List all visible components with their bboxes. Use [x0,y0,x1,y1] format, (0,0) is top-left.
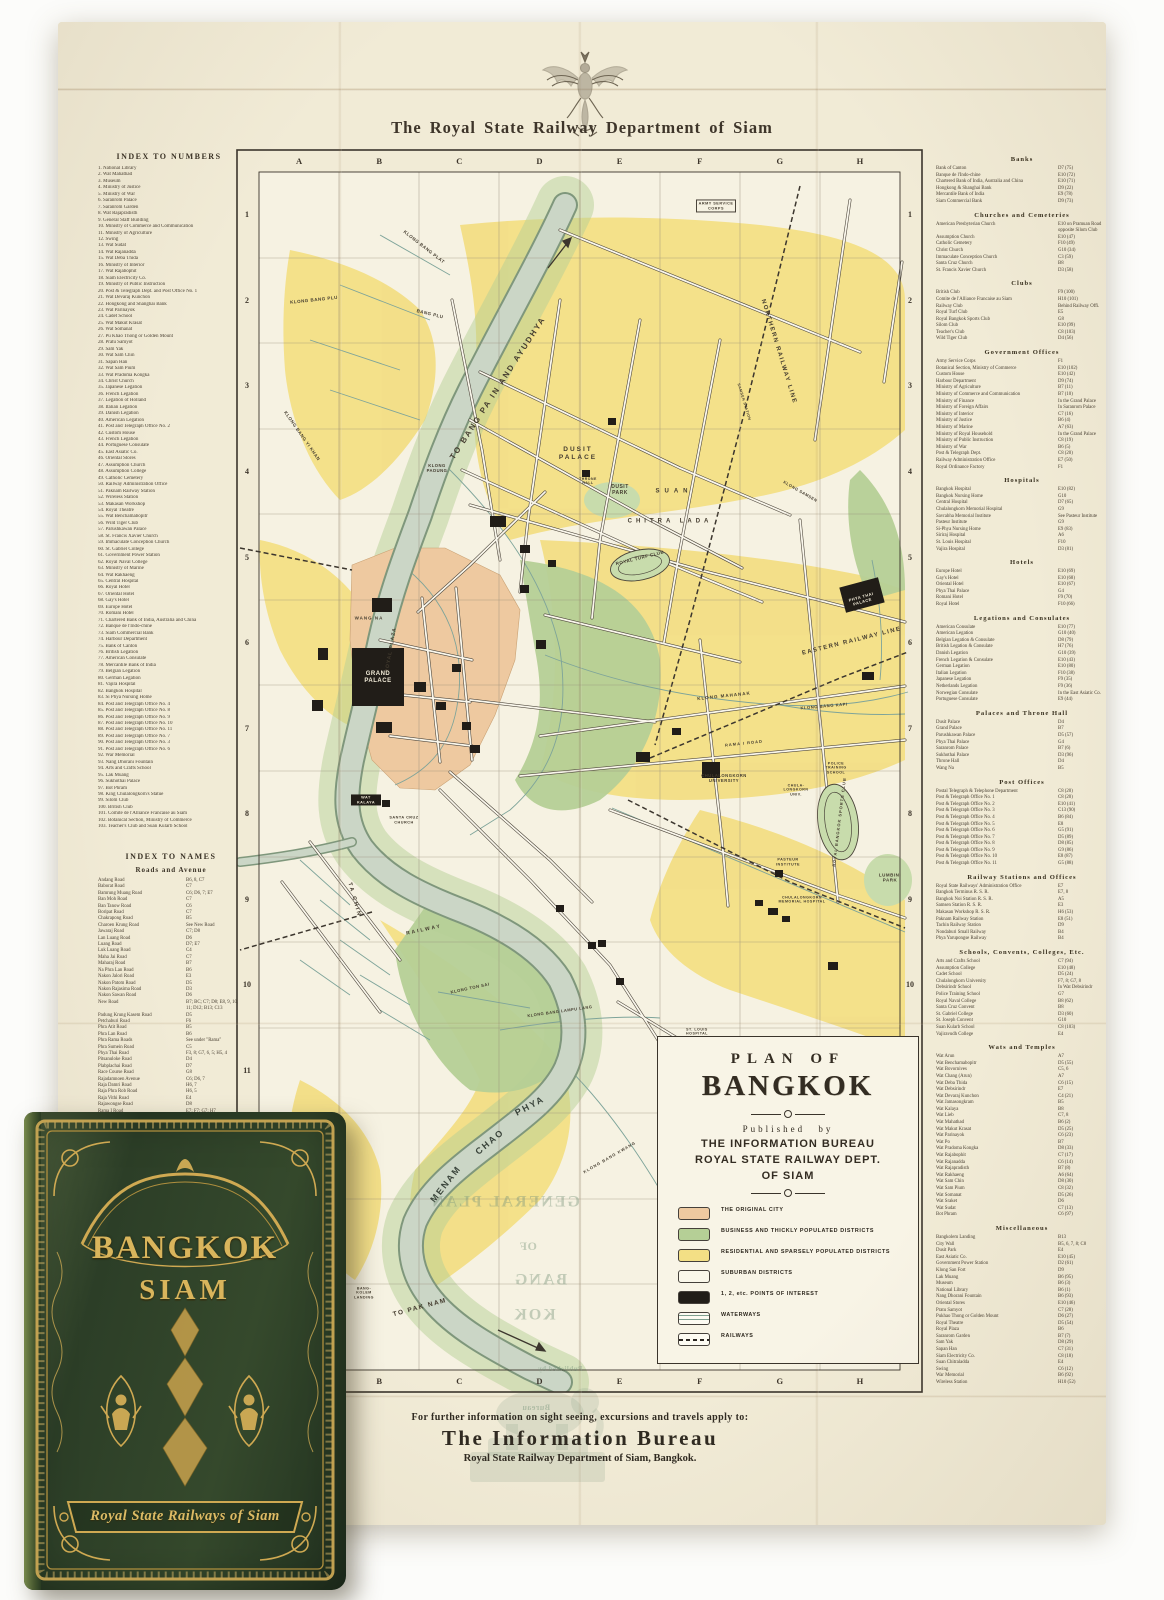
index-entry: Italian LegationF10 (38) [936,671,1106,678]
index-entry: Siam Commercial BankD9 (73) [936,199,1106,206]
index-entry: Nondaburi Small RailwayB4 [936,930,1106,937]
index-entry: Japanese LegationF9 (35) [936,677,1106,684]
grid-number: 5 [902,514,918,600]
index-section-title: Hotels [936,559,1106,566]
index-entry: Wat Chang (Arun)A7 [936,1074,1106,1081]
index-entry: Danish LegationG10 (39) [936,651,1106,658]
index-entry: Debsirindr SchoolIn Wat Debsirindr [936,985,1106,992]
index-section: Schools, Convents, Colleges, Etc. Arts a… [936,949,1106,1038]
grid-letter: H [820,1372,900,1390]
index-entry: City WallB5, 6, 7, 8; C8 [936,1242,1106,1249]
grid-number: 4 [239,429,255,515]
grid-number: 1 [239,172,255,258]
photograph-of-map-and-guidebook: The Royal State Railway Department of Si… [0,0,1164,1600]
map-grid-letters-top: ABCDEFGH [259,152,900,170]
index-section: Hotels Europe HotelE10 (69) Gay's HotelE… [936,559,1106,609]
index-entry: Wat SomanatD5 (26) [936,1193,1106,1200]
index-entry: Pukhao Thong or Golden MountD6 (27) [936,1314,1106,1321]
grid-number: 7 [902,685,918,771]
index-entry: Paknam Railway StationE8 (51) [936,917,1106,924]
index-entry: Wat KalayaB8 [936,1107,1106,1114]
grid-number: 1 [902,172,918,258]
legend-item: SUBURBAN DISTRICTS [678,1270,918,1283]
index-entry: Mercantile Bank of IndiaE9 (78) [936,192,1106,199]
index-entry: Wat JamasongkramB5 [936,1100,1106,1107]
publisher-line1: THE INFORMATION BUREAU [658,1138,918,1150]
index-section-title: Schools, Convents, Colleges, Etc. [936,949,1106,956]
index-entry: Immaculate Conception ChurchC3 (59) [936,255,1106,262]
index-entry: Bot PhramC6 (97) [936,1212,1106,1219]
grid-number: 9 [239,857,255,943]
index-entry: Vajiravudh CollegeE4 [936,1032,1106,1039]
index-section: Wats and Temples Wat ArunA7 Wat Benchama… [936,1044,1106,1219]
index-entry: Ministry of InteriorC7 (16) [936,412,1106,419]
index-entry: Cadet SchoolD5 (24) [936,972,1106,979]
index-entry: Ministry of Public InstructionC8 (19) [936,438,1106,445]
index-entry: Saranrom PalaceB7 (6) [936,746,1106,753]
grid-number: 6 [902,600,918,686]
index-section-title: Wats and Temples [936,1044,1106,1051]
index-section: Palaces and Throne Hall Dusit PalaceD4 G… [936,710,1106,773]
index-section-title: Railway Stations and Offices [936,874,1106,881]
index-entry: Santa Cruz ConventB8 [936,1005,1106,1012]
legend-item: RESIDENTIAL AND SPARSELY POPULATED DISTR… [678,1249,918,1262]
footer-line1: For further information on sight seeing,… [260,1412,900,1423]
index-by-category: Banks Bank of CantonD7 (75) Banque de l'… [936,150,1106,1387]
index-entry: Siam Electricity Co.C8 (18) [936,1354,1106,1361]
index-entry: SwingC6 (12) [936,1367,1106,1374]
legend-item: 1, 2, etc. POINTS OF INTEREST [678,1291,918,1304]
index-entry: St. Francis Xavier ChurchD3 (58) [936,268,1106,275]
index-entry: Wat RajabophitC7 (17) [936,1153,1106,1160]
grid-letter: F [660,152,740,170]
index-entry: Wat SraketD6 [936,1199,1106,1206]
index-entry: Post & Telegraph Office No. 3C13 (90) [936,808,1106,815]
railways-swatch [678,1333,710,1346]
index-entry: Arts and Crafts SchoolC7 (94) [936,959,1106,966]
grid-number: 11 [239,1028,255,1114]
grid-letter: D [499,1372,579,1390]
grid-letter: B [339,152,419,170]
index-entry: Makasan Workshop R. S. R.H6 (53) [936,910,1106,917]
grid-number: 3 [902,343,918,429]
points-of-interest-swatch [678,1291,710,1304]
index-entry: Wat RakhaengA6 (64) [936,1173,1106,1180]
index-entry: Royal Turf ClubE5 [936,310,1106,317]
index-section: Miscellaneous Bangkolem LandingB13 City … [936,1225,1106,1387]
index-entry: Chulalongkorn UniversityF7, 8; G7, 8 [936,979,1106,986]
grid-letter: G [740,152,820,170]
publisher-line3: OF SIAM [658,1170,918,1182]
index-entry: Sapan HanC7 (31) [936,1347,1106,1354]
index-entry: Royal Naval CollegeB8 (62) [936,999,1106,1006]
index-entry: Wat RajapradisthB7 (8) [936,1166,1106,1173]
index-entry: Wat Sam PiumC8 (32) [936,1186,1106,1193]
index-section-title: Legations and Consulates [936,615,1106,622]
index-section: Clubs British ClubF9 (100) Comite de l'A… [936,280,1106,343]
index-entry: Nang Dhorani FountainB6 (93) [936,1294,1106,1301]
index-entry: Bangkok Terminus R. S. R.E7, 8 [936,890,1106,897]
index-entry: Royal PlazaB6 [936,1327,1106,1334]
index-entry: American Presbyterian ChurchE10 on Pramu… [936,222,1106,235]
divider-ornament [658,1189,918,1197]
index-entry: Portuguese ConsulateE9 (44) [936,697,1106,704]
index-section: Hospitals Bangkok HospitalE10 (82) Bangk… [936,477,1106,553]
index-entry: Post & Telegraph Office No. 4B6 (84) [936,815,1106,822]
index-entry: National LibraryB6 (1) [936,1288,1106,1295]
index-to-numbers: INDEX TO NUMBERS 1. National Library2. W… [98,152,240,831]
index-entry: Postal Telegraph & Telephone DepartmentC… [936,789,1106,796]
index-entry: Bank of CantonD7 (75) [936,166,1106,173]
index-entry: Si-Phya Nursing HomeE9 (83) [936,527,1106,534]
index-entry: Post & Telegraph Office No. 5E8 [936,822,1106,829]
index-entry: Norwegian ConsulateIn the East Asiatic C… [936,691,1106,698]
index-section-title: Churches and Cemeteries [936,212,1106,219]
grid-letter: D [499,152,579,170]
index-entry: Siriraj HospitalA6 [936,533,1106,540]
business-districts-swatch [678,1228,710,1241]
index-entry: Government Power StationD2 (61) [936,1261,1106,1268]
publisher-line2: ROYAL STATE RAILWAY DEPT. [658,1154,918,1166]
legend-item: BUSINESS AND THICKLY POPULATED DISTRICTS [678,1228,918,1241]
index-entry: Belgian Legation & ConsulateD8 (79) [936,638,1106,645]
index-entry: Europe HotelE10 (69) [936,569,1106,576]
index-numbers-title: INDEX TO NUMBERS [98,152,240,161]
book-banner-text: Royal State Railways of Siam [24,1508,346,1525]
index-entry: Dusit PalaceD4 [936,720,1106,727]
suburban-districts-swatch [678,1270,710,1283]
index-entry: Ministry of AgricultureB7 (11) [936,385,1106,392]
index-section-title: Post Offices [936,779,1106,786]
index-entry: War MemorialB6 (92) [936,1373,1106,1380]
index-entry: Saranrom GardenB7 (7) [936,1334,1106,1341]
index-entry: Wat MahathadB6 (2) [936,1120,1106,1127]
index-entry: Army Service CorpsF1 [936,359,1106,366]
index-entry: Santa Cruz ChurchB8 [936,261,1106,268]
index-entry: Bangkok HospitalE10 (82) [936,487,1106,494]
index-entry: American ConsulateE10 (77) [936,625,1106,632]
index-entry: Wat PoB7 [936,1140,1106,1147]
grid-letter: G [740,1372,820,1390]
index-entry: St. Joseph ConventG10 [936,1018,1106,1025]
grid-number: 10 [239,942,255,1028]
index-entry: Wat Pradoma KongkaD8 (33) [936,1146,1106,1153]
index-entry: Klong San FortD9 [936,1268,1106,1275]
index-entry: Harbour DepartmentD9 (74) [936,379,1106,386]
index-entry: Wang NaB5 [936,766,1106,773]
index-entry: Post & Telegraph Office No. 11G5 (88) [936,861,1106,868]
index-entry: Ministry of FinanceIn the Grand Palace [936,399,1106,406]
index-entry: Teacher's ClubC8 (103) [936,330,1106,337]
roads-subtitle: Roads and Avenue [98,866,244,874]
index-entry: Sukhothai PalaceD3 (96) [936,753,1106,760]
index-entry: Chulalongkorn Memorial HospitalG9 [936,507,1106,514]
index-entry: Lak MuangB6 (95) [936,1275,1106,1282]
index-names-title: INDEX TO NAMES [98,852,244,861]
index-section-title: Banks [936,156,1106,163]
index-entry: East Asiatic Co.E10 (45) [936,1255,1106,1262]
index-entry: Samsen Station R. S. R.E3 [936,903,1106,910]
index-entry: Post & Telegraph Office No. 1C8 (20) [936,795,1106,802]
index-entry: Romani HotelF9 (70) [936,595,1106,602]
index-entry: Phya Thai PalaceG4 [936,740,1106,747]
index-entry: Parushkawan PalaceD5 (57) [936,733,1106,740]
book-title-bangkok: BANGKOK [24,1230,346,1267]
index-entry: Royal TheatreD5 (54) [936,1321,1106,1328]
index-entry: Tachin Railway StationD9 [936,923,1106,930]
index-entry: Wat DebsirindrE7 [936,1087,1106,1094]
book-title-siam: SIAM [24,1274,346,1307]
index-entry: Wat SudatC7 (13) [936,1206,1106,1213]
grid-number: 2 [902,258,918,344]
guidebook-cover: BANGKOK SIAM Royal State Railways of Sia… [24,1112,346,1590]
legend-item: THE ORIGINAL CITY [678,1207,918,1220]
index-entry: Suan ChitraladdaE4 [936,1360,1106,1367]
index-entry: Post & Telegraph Office No. 9G9 (86) [936,848,1106,855]
original-city-swatch [678,1207,710,1220]
index-entry: Wat ArunA7 [936,1054,1106,1061]
index-entry: Ministry of WarB6 (5) [936,445,1106,452]
index-entry: Silom ClubE10 (99) [936,323,1106,330]
index-entry: Ministry of Commerce and CommunicationB7… [936,392,1106,399]
index-entry: Custom HouseE10 (42) [936,372,1106,379]
index-entry: Netherlands LegationF9 (36) [936,684,1106,691]
index-entry: Phya Thai PalaceG4 [936,589,1106,596]
grid-number: 2 [239,258,255,344]
index-entry: Vajira HospitalD3 (81) [936,547,1106,554]
index-entry: Assumption ChurchE10 (47) [936,235,1106,242]
index-entry: Bangkok Nursing HomeG10 [936,494,1106,501]
index-section: Post Offices Postal Telegraph & Telephon… [936,779,1106,868]
grid-number: 7 [239,685,255,771]
grid-letter: E [580,152,660,170]
legend-title-line1: PLAN OF [658,1051,918,1068]
map-legend: PLAN OF BANGKOK Published by THE INFORMA… [657,1036,919,1364]
index-entry: Police Training SchoolG7 [936,992,1106,999]
index-entry: Pratu SamyotC7 (28) [936,1308,1106,1315]
map-sheet-title: The Royal State Railway Department of Si… [58,118,1106,138]
grid-letter: B [339,1372,419,1390]
index-entry: Royal Ordinance FactoryF1 [936,465,1106,472]
legend-item: WATERWAYS [678,1312,918,1325]
index-entry: Botanical Section, Ministry of CommerceE… [936,366,1106,373]
index-entry: Christ ChurchG10 (34) [936,248,1106,255]
index-section-title: Miscellaneous [936,1225,1106,1232]
index-section-title: Hospitals [936,477,1106,484]
index-entry: Sam YakD8 (29) [936,1340,1106,1347]
index-entry: Dusit ParkE4 [936,1248,1106,1255]
grid-number: 3 [239,343,255,429]
index-entry: Ministry of MarineA7 (63) [936,425,1106,432]
grid-number: 6 [239,600,255,686]
index-entry: Wat RajanaddaC6 (14) [936,1160,1106,1167]
grid-number: 10 [902,942,918,1028]
grid-letter: C [419,152,499,170]
index-entry: Phya Yarupongse RailwayB4 [936,936,1106,943]
index-entry: Grand PalaceB7 [936,726,1106,733]
index-entry: Wat Deba ThidaC6 (15) [936,1081,1106,1088]
index-entry: Bangkolem LandingB13 [936,1235,1106,1242]
index-entry: Comite de l'Alliance Francaise au SiamH1… [936,297,1106,304]
index-entry: Wat ParinayokC6 (23) [936,1133,1106,1140]
index-entry: Royal State Railways' Administration Off… [936,884,1106,891]
index-entry: Post & Telegraph Office No. 2E10 (41) [936,802,1106,809]
index-entry: Post & Telegraph Office No. 8D8 (85) [936,841,1106,848]
index-entry: Gay's HotelE10 (68) [936,576,1106,583]
index-entry: Wat Devaraj KunchonC4 (21) [936,1094,1106,1101]
grid-number: 4 [902,429,918,515]
grid-letter: F [660,1372,740,1390]
footer-line3: Royal State Railway Department of Siam, … [260,1453,900,1464]
index-entry: St. Louis HospitalF10 [936,540,1106,547]
index-entry: Post & Telegraph Office No. 6G5 (91) [936,828,1106,835]
information-bureau-footer: For further information on sight seeing,… [260,1412,900,1464]
grid-letter: H [820,152,900,170]
index-section: Legations and Consulates American Consul… [936,615,1106,704]
index-section-title: Palaces and Throne Hall [936,710,1106,717]
index-entry: Wat LiebC7, 8 [936,1113,1106,1120]
grid-letter: A [259,152,339,170]
index-to-names: INDEX TO NAMES Roads and Avenue Andang R… [98,852,244,1115]
index-entry: Wat Makut KrasatD5 (25) [936,1127,1106,1134]
legend-title-line2: BANGKOK [658,1070,918,1103]
index-entry: Assumption CollegeE10 (48) [936,966,1106,973]
index-entry: Central HospitalD7 (65) [936,500,1106,507]
index-entry: Pasteur InstituteG9 [936,520,1106,527]
index-entry: Post & Telegraph Office No. 7D5 (89) [936,835,1106,842]
index-entry: British ClubF9 (100) [936,290,1106,297]
index-entry: Chartered Bank of India, Australia and C… [936,179,1106,186]
published-by: Published by [658,1124,918,1134]
waterways-swatch [678,1312,710,1325]
grid-number: 8 [239,771,255,857]
index-entry: Savrabha Memorial InstituteSee Pasteur I… [936,514,1106,521]
index-number-entry: 103. Teacher's Club and Suan Kularb Scho… [98,824,240,830]
index-section: Banks Bank of CantonD7 (75) Banque de l'… [936,156,1106,206]
index-entry: Wild Tiger ClubD4 (56) [936,336,1106,343]
index-section-title: Government Offices [936,349,1106,356]
grid-letter: E [580,1372,660,1390]
index-entry: Oriental StoresE10 (46) [936,1301,1106,1308]
index-entry: Ministry of Royal HouseholdIn the Grand … [936,432,1106,439]
index-entry: Throne HallD4 [936,759,1106,766]
index-entry: Royal HotelF10 (66) [936,602,1106,609]
road-entry: New RoadB7; BC; C7; D8; E8, 9, 10, 11; D… [98,1000,244,1013]
index-section: Churches and Cemeteries American Presbyt… [936,212,1106,275]
index-entry: Royal Bangkok Sports ClubG8 [936,317,1106,324]
index-entry: Banque de l'Indo-chineE10 (72) [936,173,1106,180]
footer-line2: The Information Bureau [260,1426,900,1451]
grid-number: 9 [902,857,918,943]
grid-number: 5 [239,514,255,600]
index-entry: Ministry of Foreign AffairsIn Saranrom P… [936,405,1106,412]
index-entry: Railway ClubBehind Railway Offi. [936,304,1106,311]
grid-letter: C [419,1372,499,1390]
index-section: Government Offices Army Service CorpsF1 … [936,349,1106,471]
index-entry: Post & Telegraph Office No. 10E8 (87) [936,854,1106,861]
index-entry: Railway Administration OfficeE7 (50) [936,458,1106,465]
index-entry: Wat BovornivesC5, 6 [936,1067,1106,1074]
index-section-title: Clubs [936,280,1106,287]
index-entry: Wireless StationH10 (52) [936,1380,1106,1387]
residential-districts-swatch [678,1249,710,1262]
index-section: Railway Stations and Offices Royal State… [936,874,1106,943]
index-entry: St. Gabriel CollegeD3 (60) [936,1012,1106,1019]
map-grid-letters-bottom: ABCDEFGH [259,1372,900,1390]
index-entry: Wat Sam ChinD8 (30) [936,1179,1106,1186]
index-entry: Oriental HotelE10 (67) [936,582,1106,589]
divider-ornament [658,1110,918,1118]
index-entry: Ministry of JusticeB6 (4) [936,418,1106,425]
index-entry: British Legation & ConsulateH7 (76) [936,644,1106,651]
index-entry: Wat BenchamabopitrD5 (55) [936,1061,1106,1068]
index-entry: Bangkok Noi Station R. S. R.A5 [936,897,1106,904]
index-entry: MuseumB6 (3) [936,1281,1106,1288]
index-entry: French Legation & ConsulateE10 (43) [936,658,1106,665]
index-entry: German LegationE10 (80) [936,664,1106,671]
grid-number: 8 [902,771,918,857]
index-entry: Hongkong & Shanghai BankD9 (22) [936,186,1106,193]
index-entry: American LegationG10 (40) [936,631,1106,638]
index-entry: Catholic CemeteryF10 (49) [936,241,1106,248]
index-entry: Suan Kularb SchoolC8 (103) [936,1025,1106,1032]
index-entry: Post & Telegraph Dept.C8 (20) [936,451,1106,458]
legend-item: RAILWAYS [678,1333,918,1346]
